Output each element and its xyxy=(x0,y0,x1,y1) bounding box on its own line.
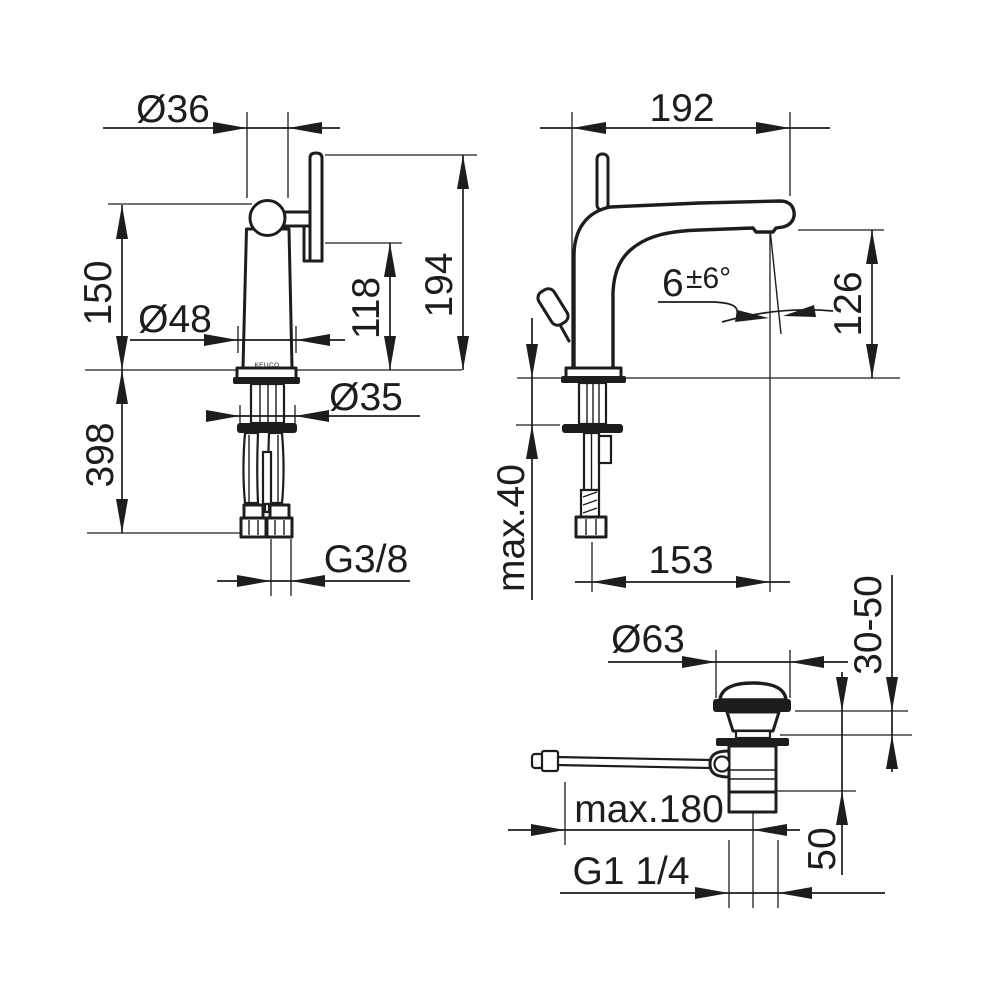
label-angle-base: 6 xyxy=(662,262,684,305)
brand-logo: KEUCO xyxy=(254,362,279,369)
arrowhead xyxy=(384,336,396,370)
side-view: 192 126 6 ±6° max.40 153 xyxy=(490,87,900,600)
arrowhead xyxy=(836,791,848,825)
arrowhead xyxy=(206,410,240,422)
front-view: KEUCO xyxy=(77,88,477,596)
label-total-height: 194 xyxy=(418,252,461,317)
arrowhead xyxy=(116,205,128,239)
handle-bar xyxy=(310,153,322,261)
arrowhead xyxy=(384,243,396,277)
arrowhead xyxy=(866,344,878,378)
center-stud xyxy=(263,452,271,504)
dim-spout-reach: 192 xyxy=(540,87,830,134)
mounting-washer xyxy=(562,424,623,433)
mounting-washer xyxy=(237,423,297,433)
arrowhead xyxy=(116,370,128,404)
arrowhead xyxy=(291,575,325,587)
cap-ridge xyxy=(736,731,770,738)
dim-outlet-projection: 153 xyxy=(575,539,790,588)
label-waste-thread: G1 1/4 xyxy=(572,850,689,893)
arrowhead xyxy=(526,344,538,378)
dim-angle: 6 ±6° xyxy=(658,262,833,322)
label-shank-diameter: Ø35 xyxy=(329,376,403,419)
dim-spout-diameter: Ø36 xyxy=(103,88,340,134)
dim-handle-height: 118 xyxy=(345,243,396,370)
label-rod-length: max.180 xyxy=(574,788,724,831)
arrowhead xyxy=(790,656,824,668)
rod-end-collar xyxy=(542,751,558,771)
label-angle-tolerance: ±6° xyxy=(686,262,731,295)
pop-up-cap-dome xyxy=(720,683,786,700)
side-lever xyxy=(535,286,570,328)
label-max-counter-thickness: max.40 xyxy=(490,464,533,592)
label-depth-below: 398 xyxy=(79,422,122,487)
label-spout-reach: 192 xyxy=(649,87,714,130)
dim-body-depth: 50 xyxy=(801,672,848,875)
arrowhead xyxy=(836,677,848,711)
pop-up-cap-flange xyxy=(713,699,791,712)
arrowhead xyxy=(756,122,790,134)
mounting-bracket xyxy=(599,436,611,463)
arrowhead xyxy=(778,887,812,899)
dim-max-counter-thickness: max.40 xyxy=(490,318,538,600)
label-base-diameter: Ø48 xyxy=(138,298,212,341)
arrowhead xyxy=(592,576,626,588)
arrowhead xyxy=(296,334,330,346)
label-supply-thread: G3/8 xyxy=(324,538,409,581)
handle-arm xyxy=(284,212,310,226)
dim-supply-thread: G3/8 xyxy=(217,538,410,587)
pop-up-rod xyxy=(556,757,710,768)
arrowhead xyxy=(736,576,770,588)
label-outlet-projection: 153 xyxy=(648,539,713,582)
arrowhead xyxy=(735,310,769,322)
drain-view: Ø63 30-50 50 max.180 G1 1/4 xyxy=(508,575,912,908)
label-height-to-base: 150 xyxy=(77,260,120,325)
dim-cap-diameter: Ø63 xyxy=(608,618,848,668)
label-handle-height: 118 xyxy=(345,277,388,339)
water-stream-line xyxy=(770,229,781,334)
arrowhead xyxy=(457,336,469,370)
arrowhead xyxy=(682,656,716,668)
dome-joint xyxy=(250,201,285,236)
label-body-depth: 50 xyxy=(801,827,844,870)
tailpipe-stub xyxy=(729,792,776,812)
technical-drawing: KEUCO xyxy=(0,0,1000,1000)
ball-joint xyxy=(715,757,730,772)
arrowhead xyxy=(288,122,322,134)
leader-curve xyxy=(714,302,737,315)
supply-hoses xyxy=(244,433,284,512)
front-faucet: KEUCO xyxy=(233,153,322,537)
spout-body xyxy=(574,201,794,370)
dim-depth-below: 398 xyxy=(79,370,128,533)
connector-nut xyxy=(241,518,266,537)
dim-outlet-height: 126 xyxy=(827,230,878,378)
dim-clamping-range: 30-50 xyxy=(847,575,898,772)
label-clamping-range: 30-50 xyxy=(847,575,890,675)
handle-stick xyxy=(597,154,608,210)
spec-sheet-page: KEUCO xyxy=(0,0,1000,1000)
arrowhead xyxy=(753,824,787,836)
center-stud-tip xyxy=(265,504,269,512)
arrowhead xyxy=(213,122,247,134)
label-outlet-height: 126 xyxy=(827,271,870,336)
hose-left xyxy=(244,433,259,503)
arrowhead xyxy=(116,499,128,533)
arrowhead xyxy=(886,677,898,711)
arrowhead xyxy=(886,735,898,769)
mounting-nut xyxy=(576,517,606,537)
dim-total-height: 194 xyxy=(418,155,469,370)
arrowhead xyxy=(116,336,128,370)
arrowhead xyxy=(531,824,565,836)
arrowhead xyxy=(526,425,538,459)
arrowhead xyxy=(695,887,729,899)
arrowhead xyxy=(457,155,469,189)
cap-neck xyxy=(727,712,779,731)
arrowhead xyxy=(295,410,329,422)
spout-tube xyxy=(243,229,292,368)
arrowhead xyxy=(572,122,606,134)
arrowhead xyxy=(866,230,878,264)
arrowhead xyxy=(237,575,271,587)
label-spout-diameter: Ø36 xyxy=(136,88,210,131)
connector-nut xyxy=(267,518,292,537)
side-faucet xyxy=(535,154,794,537)
waste-body xyxy=(729,746,776,792)
label-cap-diameter: Ø63 xyxy=(611,618,685,661)
